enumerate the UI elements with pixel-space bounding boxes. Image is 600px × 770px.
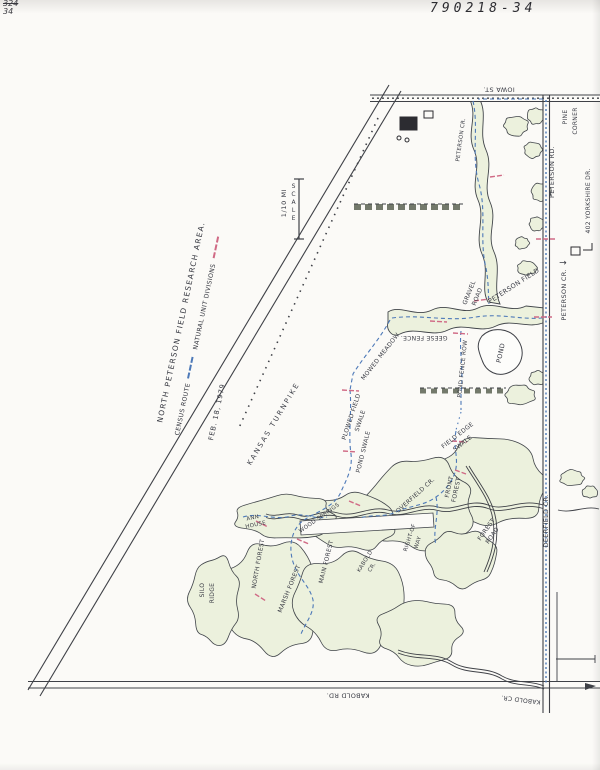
- wood-springs-label: WOOD SPRINGS: [299, 503, 341, 535]
- kabold-rd-label: KABOLD RD.: [326, 692, 369, 699]
- geese-fence-label: GEESE FENCE.: [401, 334, 448, 340]
- map-label-layer: KANSAS TURNPIKEIOWA ST.PINECORNERPETERSO…: [0, 0, 600, 770]
- kabold-cr-corner-label: KABOLD CR.: [501, 694, 541, 705]
- pond-label: POND: [496, 342, 507, 363]
- plowed-field-swale-label-2: SWALE: [355, 410, 368, 433]
- north-forest-label: NORTH FOREST: [252, 539, 267, 590]
- pond-fence-row-label: POND FENCE ROW: [458, 340, 470, 398]
- iowa-st-label: IOWA ST.: [483, 86, 514, 93]
- main-forest-label: MAIN FOREST: [319, 540, 336, 584]
- corner-note-line2: 34: [3, 8, 18, 16]
- ann-house-label-2: HOUSE: [245, 521, 267, 531]
- peterson-cr-arrow: →: [559, 260, 567, 269]
- pine-corner-label-2: CORNER: [573, 107, 579, 134]
- corner-note: 324 34: [3, 0, 18, 17]
- yorkshire-address-label: 402 YORKSHIRE DR.: [586, 168, 592, 233]
- peterson-creek-upper-label: PETERSON CR.: [456, 118, 468, 162]
- deerfield-cr-label: DEERFIELD CR.: [543, 495, 550, 548]
- peterson-field-label: PETERSON FIELD: [487, 267, 540, 305]
- peterson-cr-label: PETERSON CR.: [561, 269, 568, 320]
- pond-swale-label: POND SWALE: [356, 430, 372, 473]
- mowed-meadow-label: MOWED MEADOW: [361, 332, 402, 381]
- right-of-way-label-2: WAY: [414, 536, 423, 550]
- pine-corner-label-1: PINE: [563, 110, 569, 125]
- silo-ridge-label-1: SILO: [200, 583, 206, 598]
- document-number: 790218-34: [430, 1, 536, 16]
- scanned-map-page: 324 34 790218-34: [0, 0, 600, 770]
- silo-ridge-label-2: RIDGE: [210, 583, 216, 604]
- overfield-cr-label: OVERFIELD CR.: [396, 477, 437, 515]
- peterson-rd-label: PETERSON RD.: [549, 146, 556, 198]
- marsh-forest-label: MARSH FOREST: [278, 564, 303, 613]
- kansas-turnpike-label: KANSAS TURNPIKE: [246, 381, 301, 466]
- kabold-cr-mid-label-2: CR.: [368, 562, 378, 574]
